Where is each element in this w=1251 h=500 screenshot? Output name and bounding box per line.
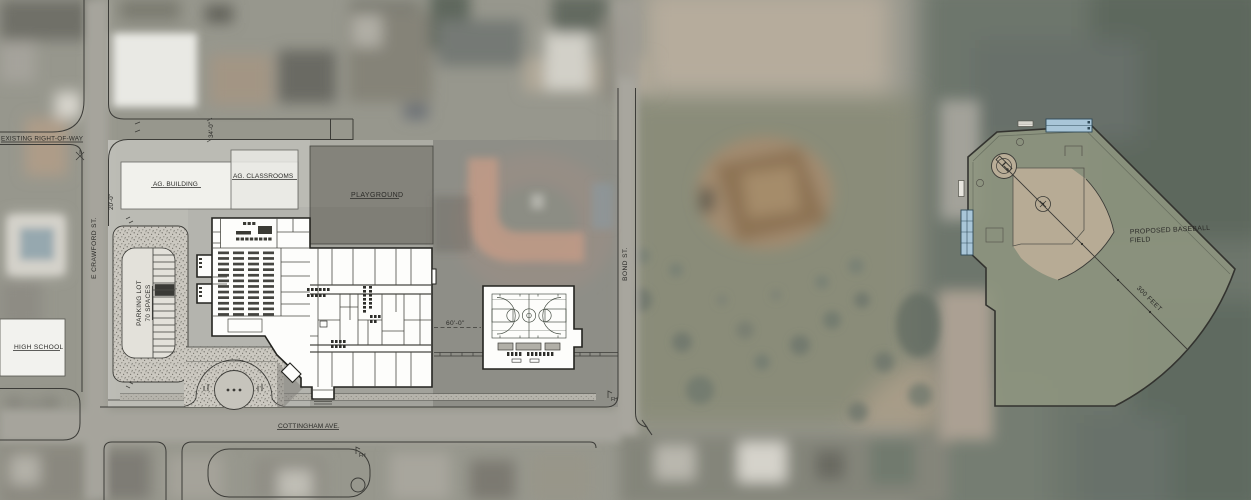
svg-text:BOND ST.: BOND ST. [622,247,629,281]
svg-text:FH: FH [359,453,366,459]
svg-text:EXISTING RIGHT-OF-WAY: EXISTING RIGHT-OF-WAY [1,136,84,143]
svg-text:PARKING LOT: PARKING LOT [136,280,143,326]
svg-text:FIELD: FIELD [1130,236,1151,244]
svg-text:HIGH SCHOOL: HIGH SCHOOL [14,344,63,351]
svg-text:60'-0": 60'-0" [446,320,465,327]
svg-text:COTTINGHAM AVE.: COTTINGHAM AVE. [278,423,340,430]
svg-text:FH: FH [611,397,618,403]
svg-text:20'-0": 20'-0" [108,194,115,210]
svg-text:70 SPACES: 70 SPACES [145,284,152,321]
svg-text:PLAYGROUND: PLAYGROUND [351,192,404,199]
svg-text:AG. CLASSROOMS: AG. CLASSROOMS [233,173,294,180]
svg-text:AG. BUILDING: AG. BUILDING [153,181,198,188]
svg-text:E CRAWFORD ST.: E CRAWFORD ST. [91,217,98,279]
svg-text:34'-0": 34'-0" [208,122,215,138]
